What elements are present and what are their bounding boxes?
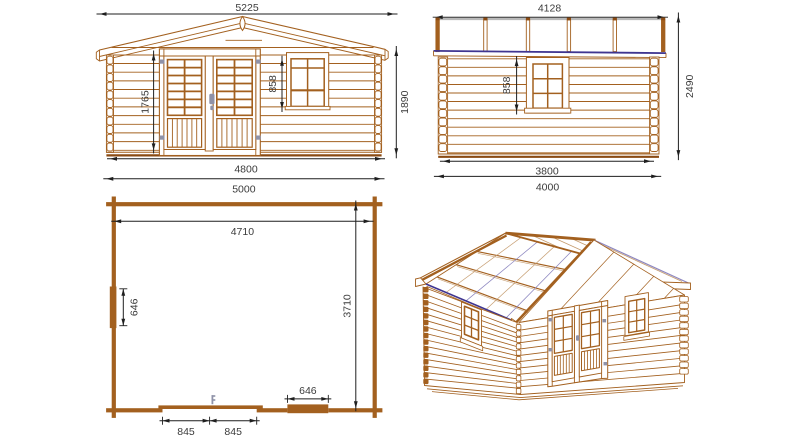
svg-text:5225: 5225	[235, 2, 259, 14]
svg-text:2490: 2490	[684, 74, 696, 98]
svg-text:4000: 4000	[536, 182, 560, 194]
svg-text:858: 858	[267, 75, 279, 93]
svg-text:4710: 4710	[231, 226, 255, 238]
svg-text:845: 845	[177, 426, 195, 438]
svg-text:845: 845	[224, 426, 242, 438]
svg-text:1765: 1765	[139, 90, 151, 114]
svg-text:3710: 3710	[342, 294, 354, 318]
svg-text:646: 646	[299, 385, 317, 397]
svg-text:1890: 1890	[399, 90, 411, 114]
svg-text:646: 646	[129, 298, 141, 316]
svg-text:5000: 5000	[232, 184, 256, 196]
svg-text:858: 858	[501, 76, 513, 94]
svg-text:4800: 4800	[234, 164, 258, 176]
svg-text:4128: 4128	[538, 3, 562, 15]
